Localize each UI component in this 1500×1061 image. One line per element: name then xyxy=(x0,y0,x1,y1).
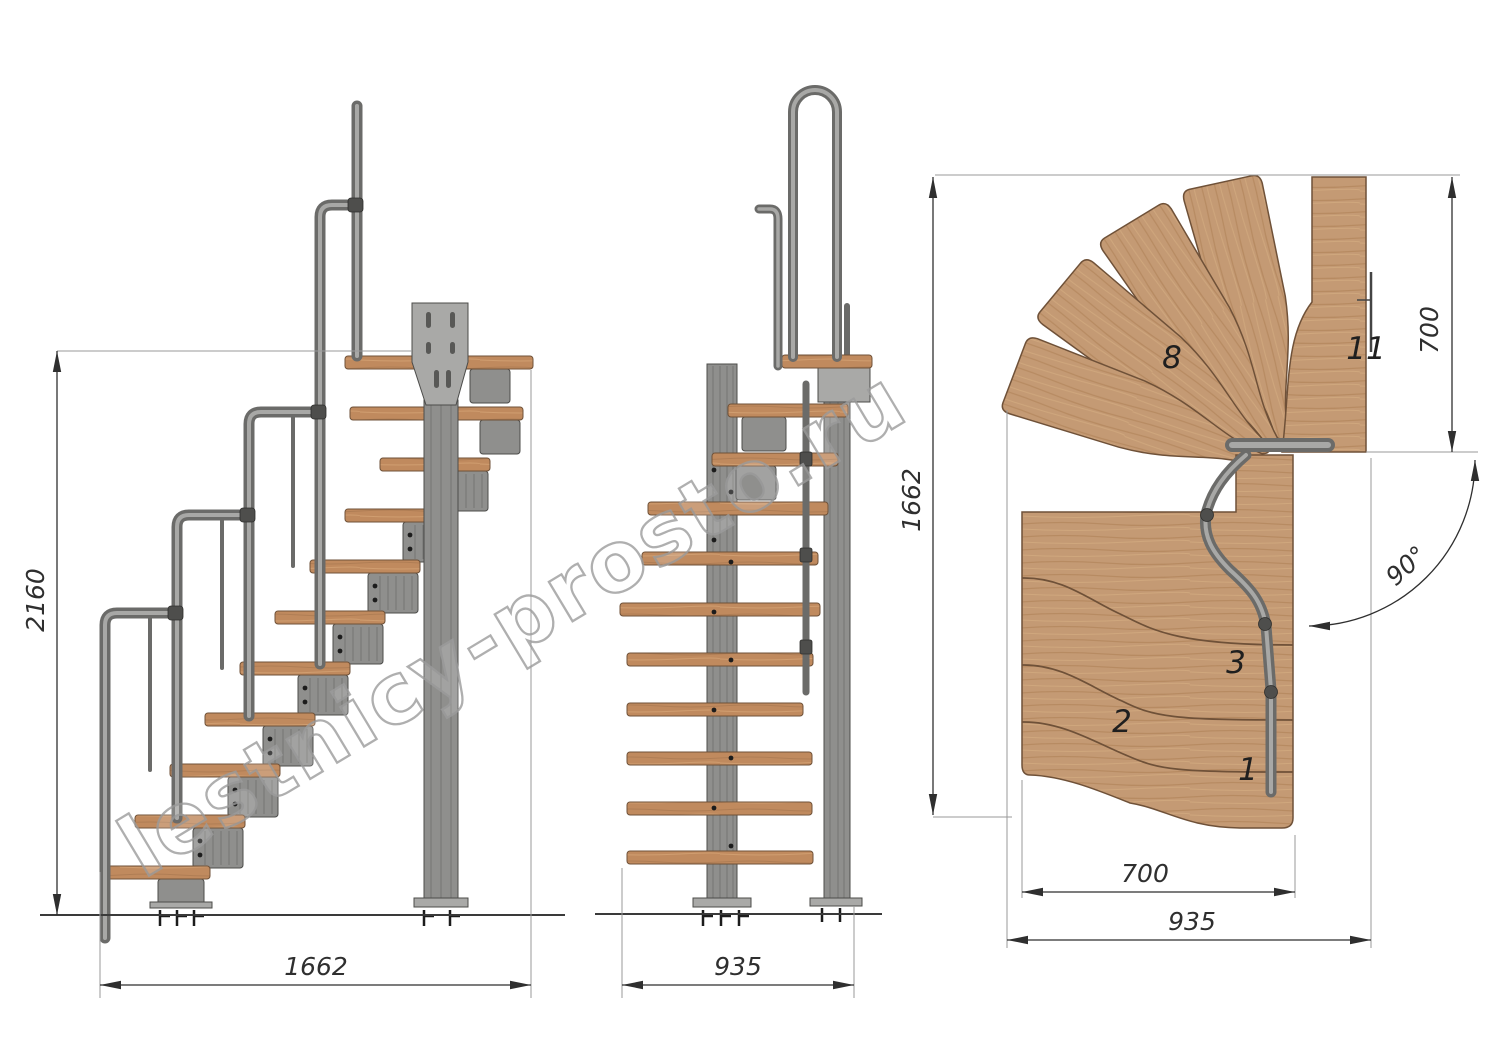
step-2-label: 2 xyxy=(1112,704,1132,740)
dim-side-total-height: 2160 xyxy=(21,351,61,915)
technical-drawing: 8 11 3 2 1 2160 1662 xyxy=(0,0,1500,1061)
dim-plan-total-depth: 1662 xyxy=(897,177,937,815)
mounting-plate xyxy=(412,303,468,405)
dim-plan-lower-flight-width: 700 xyxy=(1022,859,1295,896)
dim-plan-upper-flight-depth: 700 xyxy=(1415,177,1456,452)
dim-side-total-run: 1662 xyxy=(100,952,531,989)
dim-plan-turn-angle: 90° xyxy=(1309,460,1479,630)
dim-plan-lower-flight-width-value: 700 xyxy=(1121,859,1169,888)
dim-side-total-run-value: 1662 xyxy=(284,952,348,981)
dim-plan-upper-flight-depth-value: 700 xyxy=(1415,306,1444,354)
dim-front-total-width: 935 xyxy=(622,952,854,989)
plan-upper-flight-landing xyxy=(1282,177,1366,452)
step-11-label: 11 xyxy=(1346,331,1385,367)
dim-plan-overall-width: 935 xyxy=(1007,907,1371,944)
dim-side-total-height-value: 2160 xyxy=(21,568,50,632)
step-1-label: 1 xyxy=(1238,752,1258,788)
dim-plan-overall-width-value: 935 xyxy=(1168,907,1216,936)
step-8-label: 8 xyxy=(1162,340,1182,376)
plan-view: 8 11 3 2 1 xyxy=(1000,171,1385,828)
dim-plan-total-depth-value: 1662 xyxy=(897,468,926,532)
dim-plan-turn-angle-value: 90° xyxy=(1380,540,1432,591)
step-3-label: 3 xyxy=(1226,645,1246,681)
staircase-drawing-sheet: 8 11 3 2 1 2160 1662 xyxy=(0,0,1500,1061)
dim-front-total-width-value: 935 xyxy=(714,952,762,981)
